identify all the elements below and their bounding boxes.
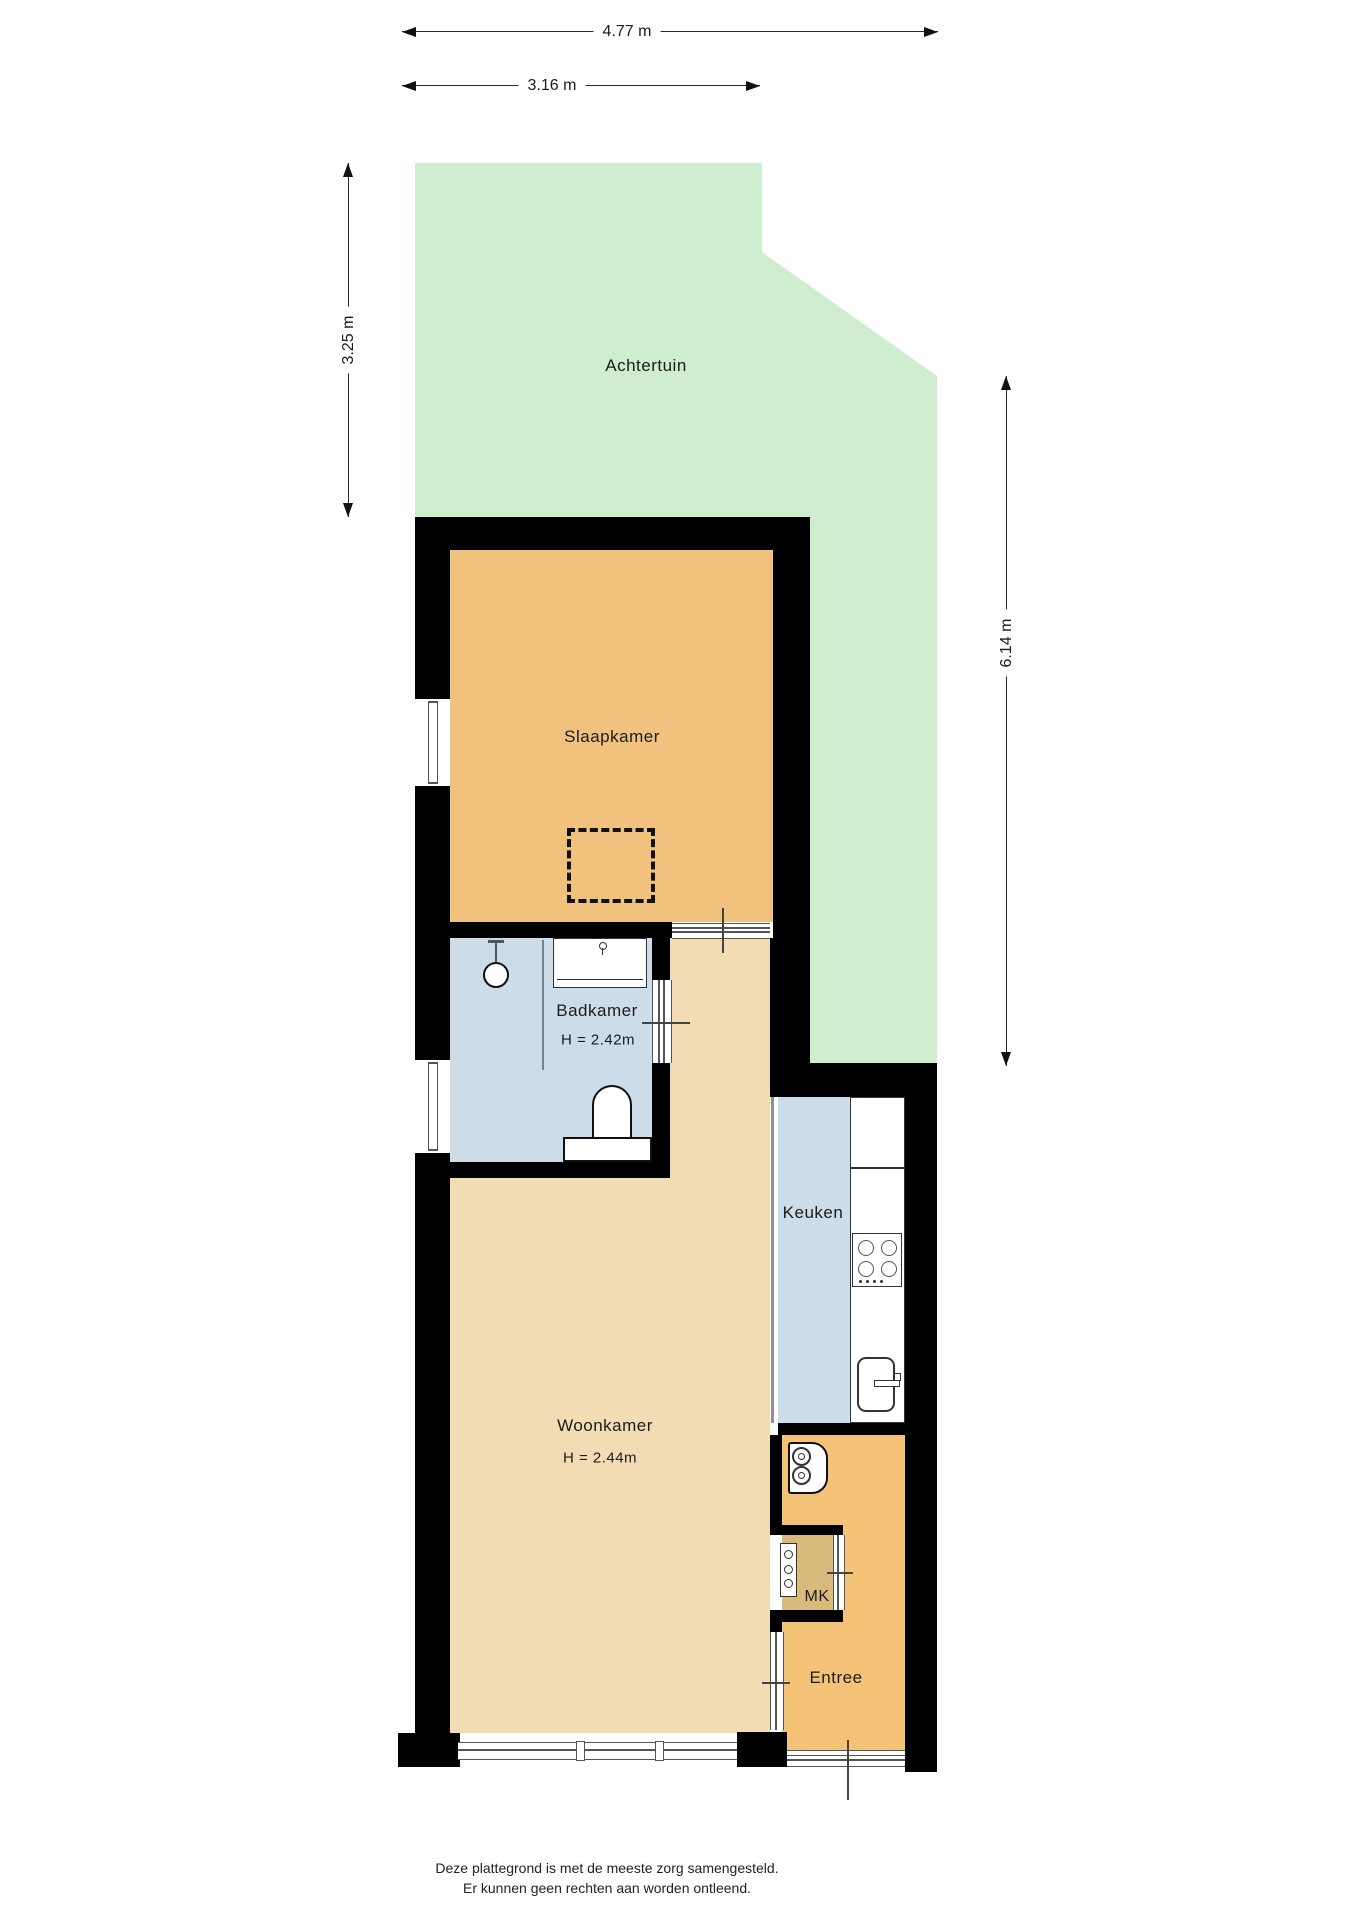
wall-kitchen-top bbox=[770, 1063, 937, 1097]
dashed-opening bbox=[567, 828, 655, 903]
label-bathroom-height: H = 2.42m bbox=[561, 1032, 635, 1049]
wall-corner-bottom-left bbox=[398, 1733, 460, 1767]
room-kitchen bbox=[778, 1097, 850, 1423]
floor-plan: 4.77 m 3.16 m 3.25 m 6.14 m bbox=[0, 0, 1358, 1920]
wall-corner-bottom-right bbox=[905, 1733, 937, 1772]
bedroom-door-tick bbox=[722, 908, 724, 953]
label-bathroom: Badkamer bbox=[556, 1001, 637, 1021]
label-living: Woonkamer bbox=[557, 1416, 653, 1436]
footer-disclaimer-line1: Deze plattegrond is met de meeste zorg s… bbox=[435, 1860, 778, 1876]
wall-right-bedroom bbox=[773, 550, 810, 938]
kitchen-hall-divider bbox=[771, 1097, 774, 1423]
kitchen-sink-icon bbox=[857, 1357, 895, 1412]
stove-icon bbox=[852, 1233, 902, 1287]
boiler-icon bbox=[788, 1442, 828, 1494]
arrow-down-icon bbox=[1001, 1052, 1011, 1066]
wall-bathroom-right-upper bbox=[652, 938, 670, 980]
wall-top bbox=[415, 517, 810, 550]
counter-divider bbox=[851, 1167, 904, 1169]
dimension-line-right bbox=[1006, 376, 1007, 1066]
wall-bedroom-bottom bbox=[443, 922, 672, 938]
footer-disclaimer-line2: Er kunnen geen rechten aan worden ontlee… bbox=[463, 1880, 751, 1896]
mk-door-tick bbox=[827, 1572, 853, 1574]
dimension-line-top-outer bbox=[402, 31, 938, 32]
wall-mk-top bbox=[770, 1525, 843, 1535]
label-living-height: H = 2.44m bbox=[563, 1450, 637, 1467]
bathroom-door-tick bbox=[642, 1022, 690, 1024]
dimension-right: 6.14 m bbox=[998, 610, 1016, 677]
arrow-up-icon bbox=[1001, 376, 1011, 390]
window-bedroom bbox=[415, 699, 450, 786]
arrow-right-icon bbox=[746, 81, 760, 91]
arrow-up-icon bbox=[343, 163, 353, 177]
wall-entry-left-upper bbox=[770, 1435, 782, 1525]
shower-partition bbox=[542, 940, 544, 1070]
dimension-top-outer: 4.77 m bbox=[594, 23, 661, 41]
wall-kitchen-bottom bbox=[778, 1423, 905, 1435]
front-door bbox=[787, 1750, 905, 1767]
front-door-tick bbox=[847, 1740, 849, 1800]
dimension-left: 3.25 m bbox=[340, 307, 358, 374]
wall-corner-bottom-mid bbox=[737, 1732, 787, 1767]
bedroom-sliding-door bbox=[672, 923, 770, 939]
shower-icon bbox=[483, 940, 511, 990]
washbasin-icon bbox=[553, 938, 647, 988]
hallway bbox=[670, 938, 770, 1178]
arrow-down-icon bbox=[343, 503, 353, 517]
window-living-bottom bbox=[458, 1742, 737, 1760]
label-garden: Achtertuin bbox=[605, 356, 687, 376]
window-living-entry bbox=[770, 1632, 784, 1730]
arrow-right-icon bbox=[924, 27, 938, 37]
dimension-top-inner: 3.16 m bbox=[519, 77, 586, 95]
label-bedroom: Slaapkamer bbox=[564, 727, 660, 747]
wall-entry-left-lower bbox=[770, 1622, 782, 1632]
wall-right-outer bbox=[905, 1097, 937, 1772]
label-entry: Entree bbox=[809, 1668, 862, 1688]
wall-mk-bottom bbox=[770, 1610, 843, 1622]
meter-panel-icon bbox=[780, 1543, 797, 1597]
living-entry-tick bbox=[762, 1682, 790, 1684]
wall-bathroom-bottom bbox=[448, 1162, 670, 1178]
window-bathroom bbox=[415, 1060, 450, 1153]
label-kitchen: Keuken bbox=[783, 1203, 844, 1223]
wall-bathroom-right-lower bbox=[652, 1063, 670, 1178]
arrow-left-icon bbox=[402, 81, 416, 91]
arrow-left-icon bbox=[402, 27, 416, 37]
toilet-icon bbox=[563, 1085, 652, 1162]
label-meter-closet: MK bbox=[805, 1588, 830, 1606]
